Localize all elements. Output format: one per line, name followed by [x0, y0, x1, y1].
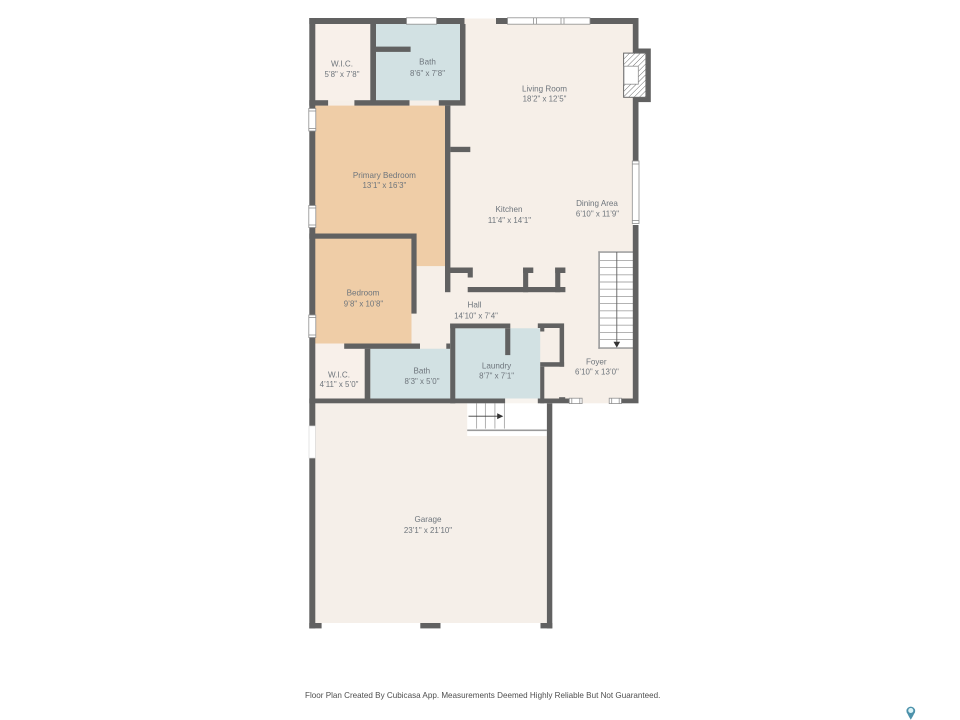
svg-text:23’1" x 21’10": 23’1" x 21’10"	[404, 526, 452, 535]
svg-text:Living Room: Living Room	[522, 85, 567, 94]
svg-text:Bath: Bath	[419, 58, 436, 67]
svg-text:8’7" x 7’1": 8’7" x 7’1"	[479, 371, 514, 380]
svg-text:Kitchen: Kitchen	[496, 205, 523, 214]
svg-text:14’10" x 7’4": 14’10" x 7’4"	[454, 312, 498, 321]
svg-text:6’10" x 13’0": 6’10" x 13’0"	[575, 368, 619, 377]
svg-text:5’8" x 7’8": 5’8" x 7’8"	[325, 70, 360, 79]
svg-text:Hall: Hall	[468, 301, 482, 310]
svg-text:Garage: Garage	[415, 515, 442, 524]
svg-text:Dining Area: Dining Area	[576, 199, 618, 208]
svg-text:11’4" x 14’1": 11’4" x 14’1"	[488, 216, 531, 225]
svg-text:18’2" x 12’5": 18’2" x 12’5"	[523, 95, 567, 104]
svg-text:Foyer: Foyer	[586, 358, 607, 367]
svg-text:9’8" x 10’8": 9’8" x 10’8"	[344, 299, 384, 308]
svg-text:4’11" x 5’0": 4’11" x 5’0"	[320, 380, 359, 389]
svg-text:13’1" x 16’3": 13’1" x 16’3"	[363, 181, 407, 190]
svg-text:Primary Bedroom: Primary Bedroom	[353, 171, 416, 180]
svg-text:W.I.C.: W.I.C.	[331, 60, 353, 69]
svg-text:8’3" x 5’0": 8’3" x 5’0"	[405, 377, 440, 386]
svg-text:Bath: Bath	[413, 367, 430, 376]
svg-text:W.I.C.: W.I.C.	[328, 371, 350, 380]
svg-text:Laundry: Laundry	[482, 361, 512, 370]
svg-text:6’10" x 11’9": 6’10" x 11’9"	[576, 210, 619, 219]
svg-text:Bedroom: Bedroom	[347, 288, 380, 297]
svg-text:8’6" x 7’8": 8’6" x 7’8"	[410, 69, 445, 78]
svg-text:Floor Plan Created By Cubicasa: Floor Plan Created By Cubicasa App. Meas…	[305, 691, 660, 700]
